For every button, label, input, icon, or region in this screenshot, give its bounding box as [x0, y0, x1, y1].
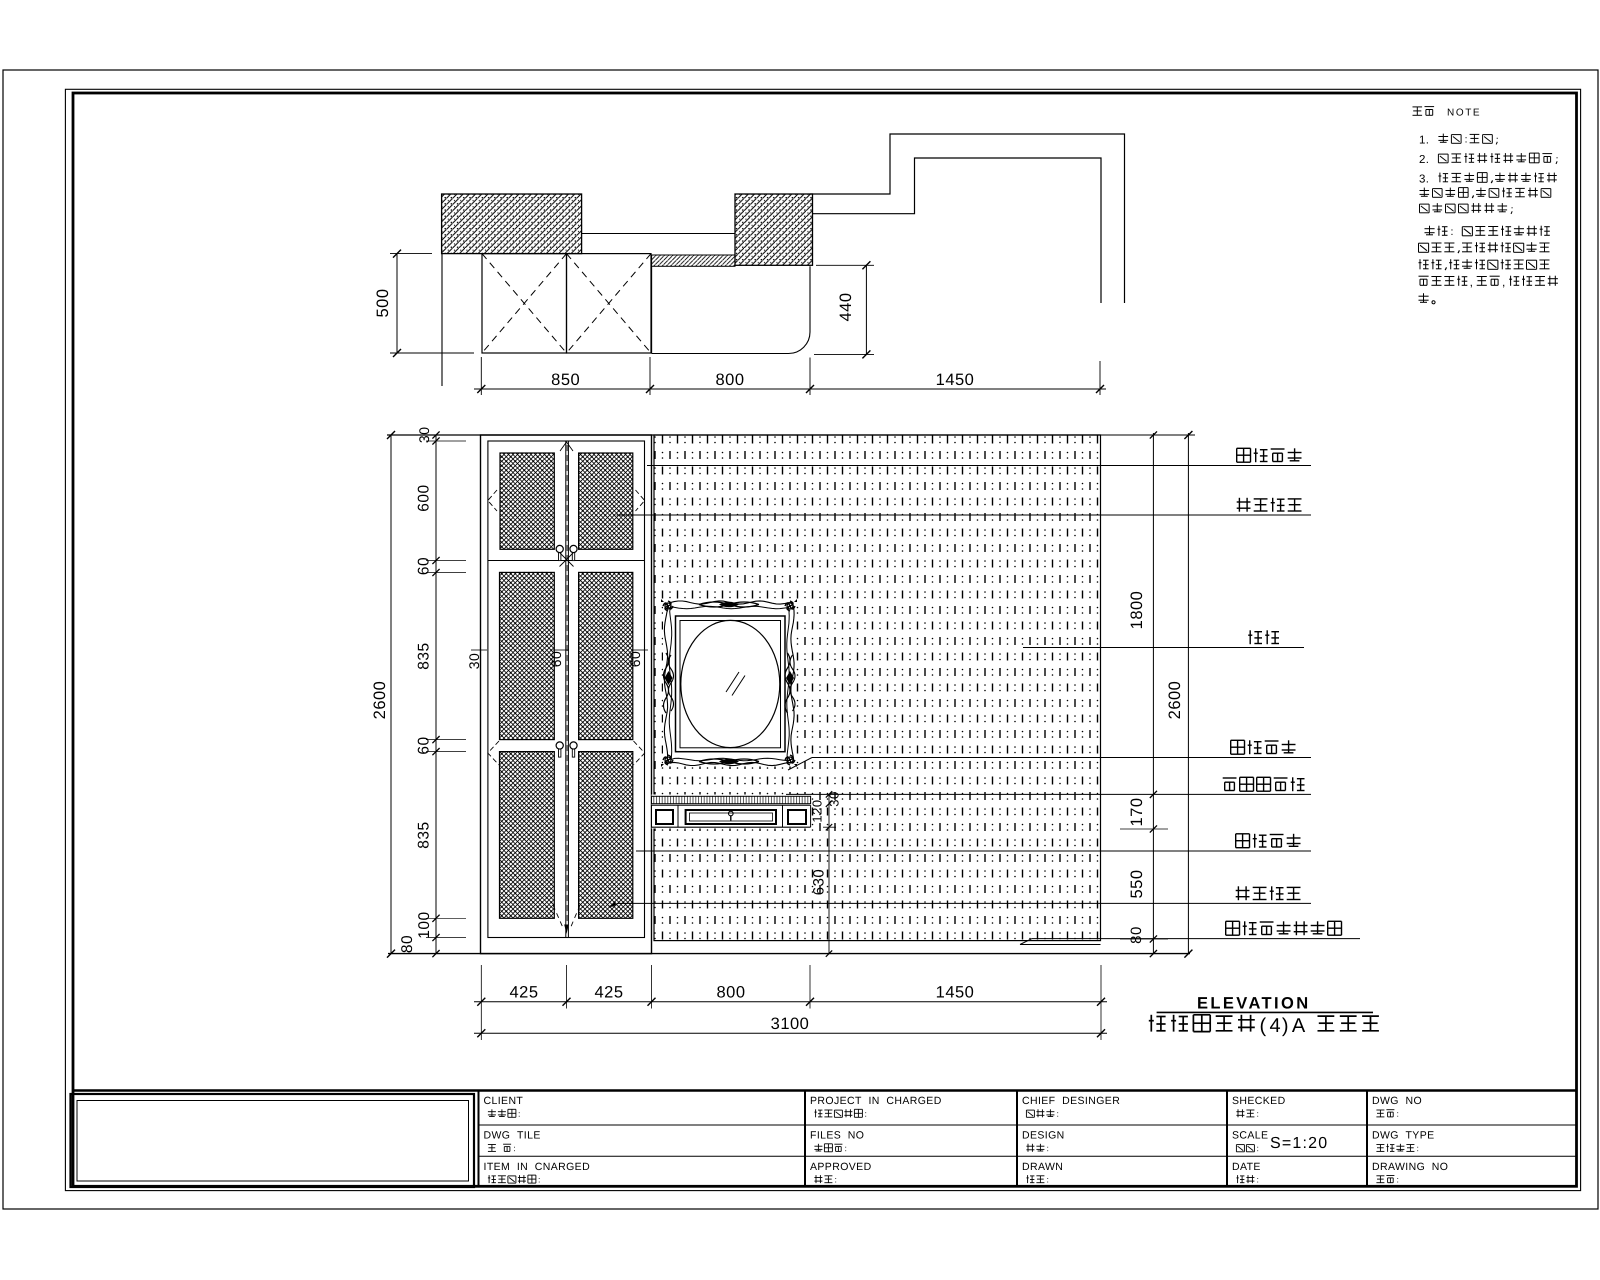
svg-text:DRAWING NO: DRAWING NO — [1372, 1161, 1448, 1173]
svg-text:1.: 1. — [1419, 135, 1429, 147]
svg-text:APPROVED: APPROVED — [810, 1161, 872, 1173]
svg-text:550: 550 — [1128, 869, 1146, 898]
svg-text:(: ( — [1260, 1015, 1267, 1037]
svg-text:DWG TILE: DWG TILE — [484, 1130, 541, 1142]
svg-text:DESIGN: DESIGN — [1022, 1130, 1065, 1142]
svg-text:DRAWN: DRAWN — [1022, 1161, 1063, 1173]
svg-text:CHIEF DESINGER: CHIEF DESINGER — [1022, 1095, 1120, 1107]
svg-text:850: 850 — [551, 371, 580, 389]
svg-text:FILES NO: FILES NO — [810, 1130, 864, 1142]
svg-text:PROJECT IN CHARGED: PROJECT IN CHARGED — [810, 1095, 942, 1107]
svg-text:2.: 2. — [1419, 154, 1429, 166]
svg-text:80: 80 — [399, 935, 416, 953]
svg-text:CLIENT: CLIENT — [484, 1095, 524, 1107]
svg-text:,: , — [1502, 275, 1506, 289]
svg-text:30: 30 — [466, 653, 482, 670]
svg-text:120: 120 — [810, 799, 825, 822]
svg-text:S=1:20: S=1:20 — [1270, 1135, 1328, 1152]
svg-text:A: A — [1292, 1015, 1306, 1037]
svg-text:): ) — [1282, 1015, 1289, 1037]
svg-text:1800: 1800 — [1128, 591, 1146, 630]
svg-text:2600: 2600 — [371, 681, 389, 720]
svg-text:1450: 1450 — [936, 984, 975, 1002]
svg-text:600: 600 — [416, 484, 433, 511]
svg-text:ITEM IN CNARGED: ITEM IN CNARGED — [484, 1161, 591, 1173]
svg-text:SHECKED: SHECKED — [1232, 1095, 1286, 1107]
svg-text:3.: 3. — [1419, 174, 1429, 186]
svg-text:DWG NO: DWG NO — [1372, 1095, 1422, 1107]
svg-text:SCALE: SCALE — [1232, 1130, 1268, 1142]
svg-text:800: 800 — [716, 984, 745, 1002]
svg-text:30: 30 — [416, 427, 432, 444]
svg-text:80: 80 — [1128, 926, 1145, 944]
svg-text:60: 60 — [416, 557, 433, 575]
svg-text:DATE: DATE — [1232, 1161, 1261, 1173]
svg-text:800: 800 — [715, 371, 744, 389]
svg-text:440: 440 — [837, 292, 855, 321]
svg-text:60: 60 — [416, 736, 433, 754]
svg-text:425: 425 — [509, 984, 538, 1002]
svg-text:630: 630 — [811, 869, 828, 896]
svg-text:NOTE: NOTE — [1447, 108, 1481, 119]
svg-text:425: 425 — [594, 984, 623, 1002]
svg-text:2600: 2600 — [1166, 681, 1184, 720]
svg-text:DWG TYPE: DWG TYPE — [1372, 1130, 1435, 1142]
svg-text:100: 100 — [416, 911, 433, 938]
svg-text:60: 60 — [627, 651, 643, 668]
svg-text:3100: 3100 — [771, 1015, 810, 1033]
svg-text:500: 500 — [374, 288, 392, 317]
svg-text:1450: 1450 — [936, 371, 975, 389]
svg-text:ELEVATION: ELEVATION — [1197, 995, 1311, 1013]
svg-text:60: 60 — [548, 651, 564, 668]
svg-text:835: 835 — [416, 821, 433, 848]
svg-text:170: 170 — [1128, 797, 1146, 826]
svg-text:4: 4 — [1270, 1015, 1281, 1037]
svg-text:835: 835 — [416, 642, 433, 669]
svg-text:30: 30 — [827, 791, 842, 806]
svg-text:,: , — [1470, 275, 1474, 289]
